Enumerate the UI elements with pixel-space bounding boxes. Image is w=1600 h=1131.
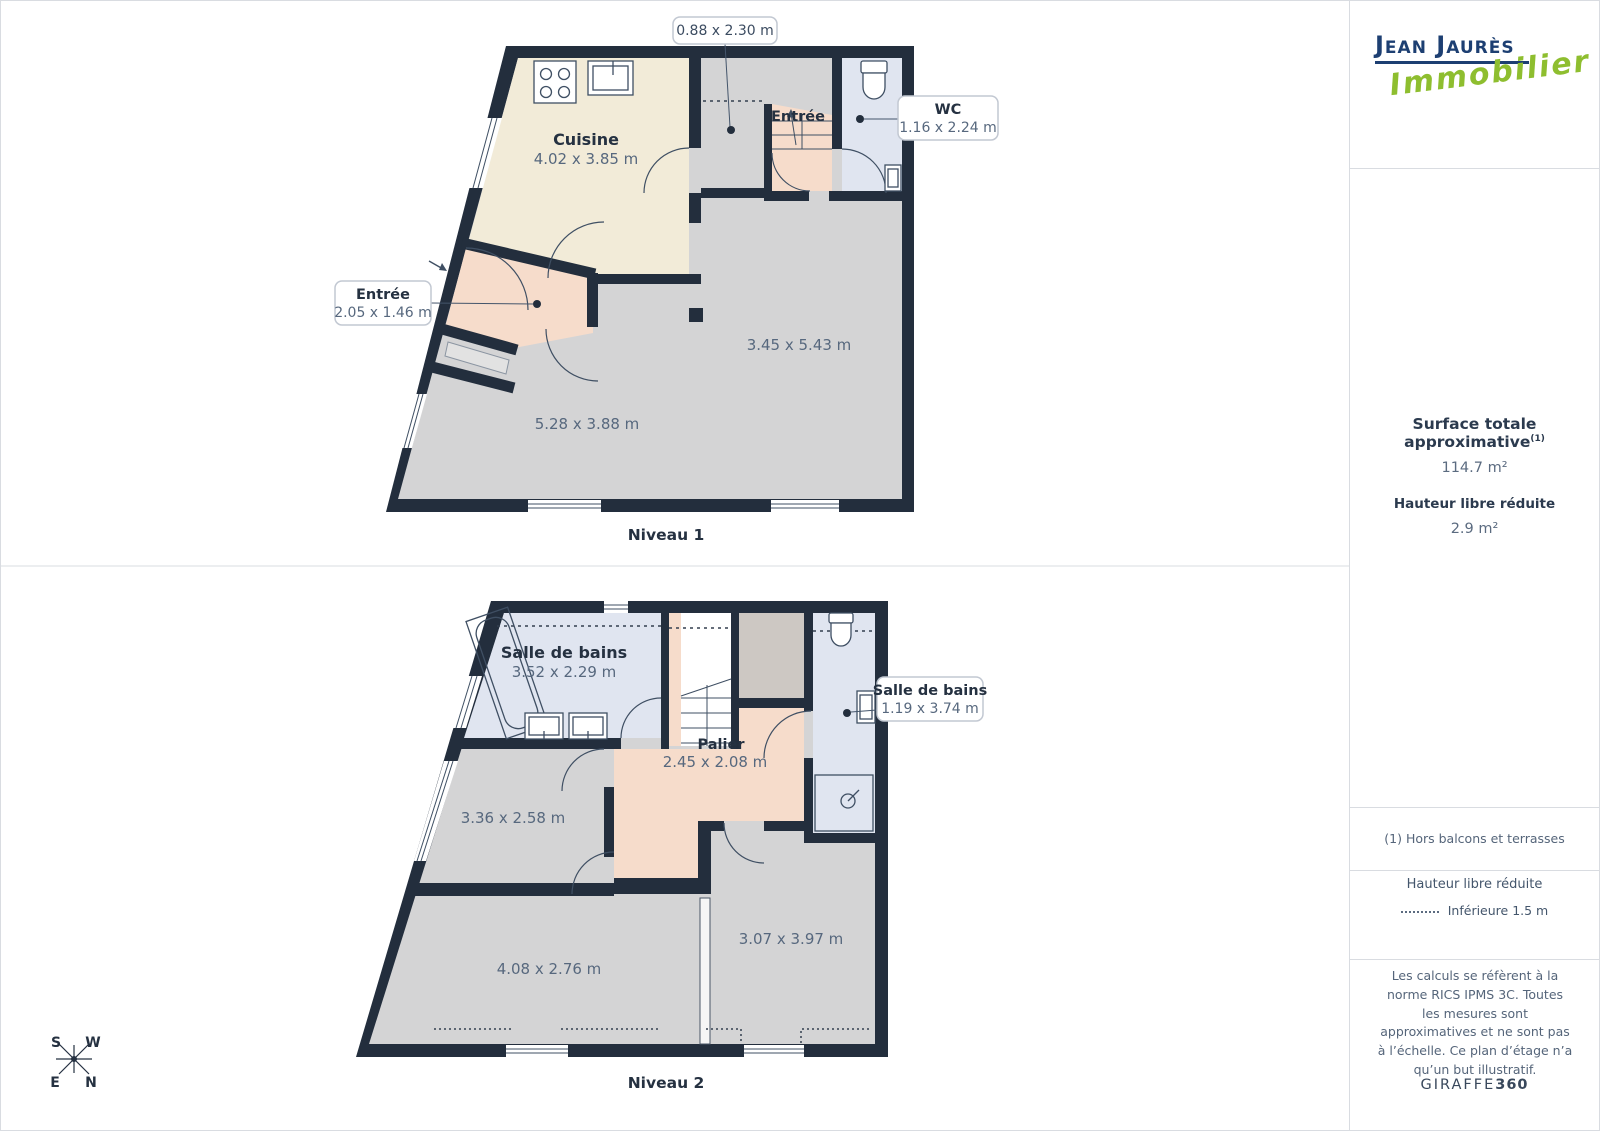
compass-s: S	[51, 1035, 61, 1051]
kitchen-sink-icon	[588, 61, 633, 95]
kitchen-dims: 4.02 x 3.85 m	[534, 150, 639, 168]
legend: Hauteur libre réduite Inférieure 1.5 m	[1350, 877, 1599, 918]
reduced-height-title: Hauteur libre réduite	[1350, 496, 1599, 512]
disclaimer-text: Les calculs se réfèrent à la norme RICS …	[1377, 967, 1573, 1080]
level-2-title: Niveau 2	[628, 1074, 705, 1092]
callout-wc-name: WC	[935, 102, 962, 118]
floor-plan-level-1: 0.88 x 2.30 m WC 1.16 x 2.24 m Entrée 2.…	[334, 17, 998, 544]
bathroom-sink-icon	[569, 713, 607, 739]
stairwell	[681, 613, 731, 746]
level-1-title: Niveau 1	[628, 526, 705, 544]
living-dims-left: 5.28 x 3.88 m	[535, 415, 640, 433]
compass-w: W	[85, 1035, 100, 1051]
palier-label: Palier	[698, 737, 746, 753]
callout-wc-dims: 1.16 x 2.24 m	[899, 120, 997, 136]
footnote-marker: (1)	[1530, 434, 1545, 444]
compass-icon: S W E N	[50, 1035, 101, 1091]
surface-total-value: 114.7 m²	[1350, 460, 1599, 476]
sidebar-divider	[1350, 807, 1599, 808]
thin-partition	[700, 898, 710, 1044]
bedroom-right-dims: 3.07 x 3.97 m	[739, 930, 844, 948]
bathroom-sink-icon	[525, 713, 563, 739]
wc-sink-icon	[885, 165, 901, 191]
compass-n: N	[85, 1075, 97, 1091]
sidebar-divider	[1350, 870, 1599, 871]
footnote: (1) Hors balcons et terrasses	[1350, 831, 1599, 846]
floor-plans-svg: 0.88 x 2.30 m WC 1.16 x 2.24 m Entrée 2.…	[1, 1, 1351, 1130]
callout-bathroom-2-dims: 1.19 x 3.74 m	[881, 701, 979, 717]
floor-plan-page: 0.88 x 2.30 m WC 1.16 x 2.24 m Entrée 2.…	[0, 0, 1600, 1131]
callout-entree-name: Entrée	[356, 287, 410, 303]
info-sidebar	[1349, 1, 1600, 1130]
dotted-line-icon	[1401, 911, 1439, 913]
brand-number: 360	[1495, 1077, 1528, 1093]
kitchen-label: Cuisine	[553, 130, 619, 149]
bedroom-left-dims: 4.08 x 2.76 m	[497, 960, 602, 978]
toilet-icon	[861, 61, 887, 99]
compass-e: E	[50, 1075, 60, 1091]
legend-title: Hauteur libre réduite	[1350, 877, 1599, 892]
entrance-arrow-icon	[429, 261, 447, 271]
toilet-icon	[829, 613, 853, 646]
stove-icon	[534, 61, 576, 103]
bathroom-main-dims: 3.52 x 2.29 m	[512, 663, 617, 681]
stair-hall-label: Entrée	[771, 109, 825, 125]
callout-corridor-dims: 0.88 x 2.30 m	[676, 23, 774, 39]
legend-row: Inférieure 1.5 m	[1350, 903, 1599, 918]
brand-name: GIRAFFE	[1420, 1077, 1495, 1093]
callout-entree-dims: 2.05 x 1.46 m	[334, 305, 432, 321]
floor-plan-level-2: Salle de bains 1.19 x 3.74 m Salle de ba…	[356, 601, 987, 1092]
reduced-height-value: 2.9 m²	[1350, 521, 1599, 537]
callout-bathroom-2-name: Salle de bains	[873, 683, 987, 699]
sidebar-divider	[1350, 168, 1599, 169]
stair-strip	[669, 613, 681, 746]
legend-label: Inférieure 1.5 m	[1448, 903, 1548, 918]
storage-floor	[739, 613, 804, 698]
agency-logo: Jean Jaurès Immobilier	[1375, 31, 1551, 91]
bedroom-top-dims: 3.36 x 2.58 m	[461, 809, 566, 827]
living-dims-right: 3.45 x 5.43 m	[747, 336, 852, 354]
surface-total-title: Surface totale approximative(1)	[1350, 415, 1599, 451]
sidebar-divider	[1350, 959, 1599, 960]
bathroom-main-label: Salle de bains	[501, 643, 627, 662]
brand-mark: GIRAFFE360	[1350, 1077, 1599, 1093]
column	[689, 308, 703, 322]
palier-dims: 2.45 x 2.08 m	[663, 753, 768, 771]
surface-summary: Surface totale approximative(1) 114.7 m²…	[1350, 415, 1599, 537]
